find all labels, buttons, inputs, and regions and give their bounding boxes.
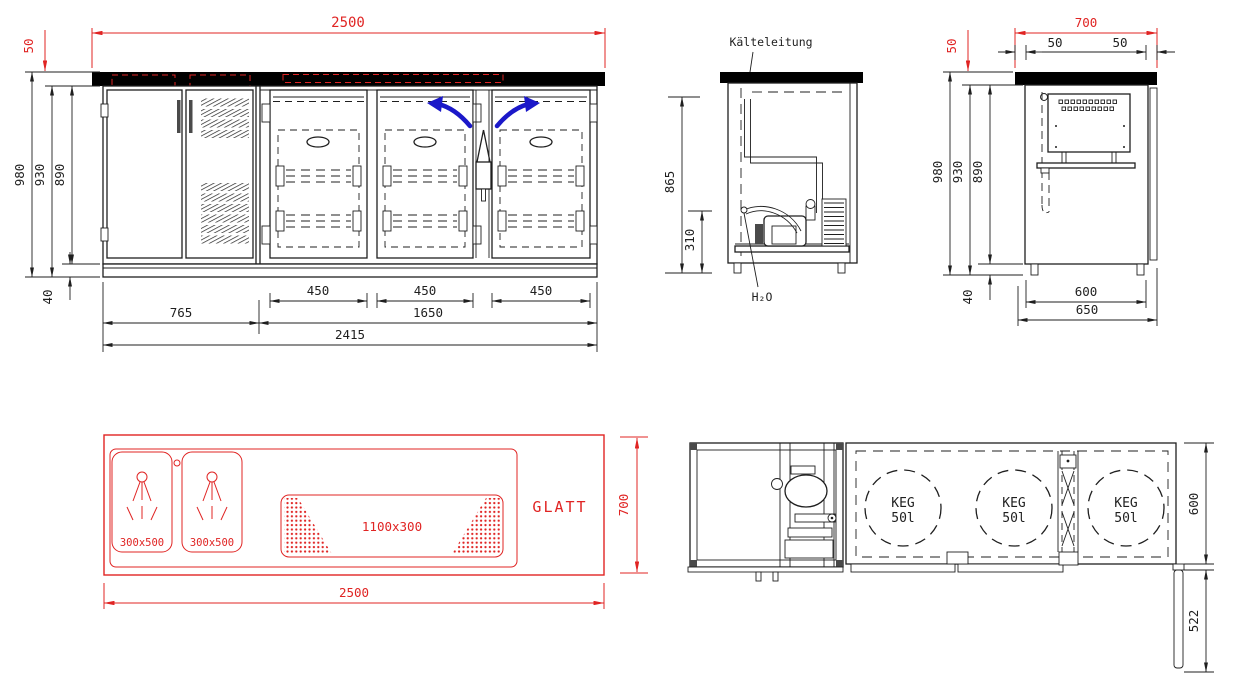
dim-label-side-50a: 50: [1047, 35, 1062, 50]
dim-label-front-50: 50: [21, 38, 36, 53]
front-dim-2500: 2500: [92, 15, 605, 68]
keg2-label: KEG: [1002, 496, 1026, 511]
dim-label-865: 865: [662, 171, 677, 194]
dim-label-1650: 1650: [413, 305, 443, 320]
side-dim-50-red: 50: [944, 30, 968, 71]
hinge-icon: [262, 104, 270, 122]
front-width-dims: 450 450 450 765 1650 2415: [103, 282, 597, 352]
dim-label-counter-700: 700: [616, 494, 631, 517]
side-width-dims: 600 650: [1018, 268, 1157, 326]
leg: [773, 572, 778, 581]
hinge-icon: [590, 104, 597, 122]
side-section-view: Kälteleitung: [662, 35, 863, 304]
dim-label-plan-600: 600: [1186, 493, 1201, 516]
counter-dim-2500: 2500: [104, 583, 604, 609]
hinge-icon: [473, 226, 481, 244]
hinge-icon: [101, 104, 108, 117]
hinge-icon: [473, 104, 481, 122]
dim-label-2415: 2415: [335, 327, 365, 342]
drainer-ribs-left: [284, 498, 332, 554]
section-dims: 865 310: [662, 97, 712, 273]
faucet-icon: [197, 472, 227, 520]
keg2-volume: 50l: [1002, 511, 1025, 526]
dim-label-side-50b: 50: [1112, 35, 1127, 50]
hinge-icon: [101, 228, 108, 241]
sink1-size-label: 300x500: [120, 537, 164, 549]
drainer-size-label: 1100x300: [362, 519, 422, 534]
keg3-volume: 50l: [1114, 511, 1137, 526]
front-elevation-view: 2500 50: [12, 15, 605, 352]
counter-outline: [104, 435, 604, 575]
dim-label-door1-450: 450: [307, 283, 330, 298]
left-door-handle: [177, 100, 181, 133]
side-countertop: [1015, 72, 1157, 85]
surface-finish-label: GLATT: [532, 498, 587, 516]
dim-label-counter-2500: 2500: [339, 585, 369, 600]
refrigerant-line-label: Kälteleitung: [729, 35, 812, 49]
leg: [756, 572, 761, 581]
shelf: [1037, 163, 1135, 168]
dim-label-door3-450: 450: [530, 283, 553, 298]
section-countertop: [720, 72, 863, 83]
counter-dim-700: 700: [616, 437, 648, 573]
countertop-plan-view: 300x500 300x500 1100x300 GLATT 700 2500: [104, 435, 648, 609]
front-dim-50: 50: [21, 30, 45, 71]
technical-drawing: 2500 50: [0, 0, 1241, 697]
dim-label-side-50-red: 50: [944, 38, 959, 53]
front-cabinet-base: [103, 264, 597, 277]
water-drain-label: H₂O: [752, 290, 773, 304]
dim-label-side-930: 930: [950, 161, 965, 184]
side-dim-700: 700: [1015, 15, 1157, 68]
sink2-size-label: 300x500: [190, 537, 234, 549]
dim-label-front-40: 40: [40, 289, 55, 304]
dim-label-front-980: 980: [12, 164, 27, 187]
faucet-icon: [127, 472, 157, 520]
drainer-ribs-right: [452, 498, 500, 554]
leg: [1031, 264, 1038, 275]
dim-label-plan-522: 522: [1186, 610, 1201, 633]
right-door-handle: [189, 100, 193, 133]
dim-label-door2-450: 450: [414, 283, 437, 298]
side-height-dims: 980 930 890 40: [930, 72, 1023, 305]
cabinet-plan-view: KEG 50l KEG 50l KEG 50l: [688, 443, 1214, 672]
tap-hole: [174, 460, 180, 466]
leg: [838, 263, 845, 273]
dim-label-side-980: 980: [930, 161, 945, 184]
drawing-canvas: 2500 50: [0, 0, 1241, 697]
machinery-compartment-plan: [688, 443, 843, 581]
side-door-panel: [1150, 88, 1157, 260]
keg1-volume: 50l: [891, 511, 914, 526]
hinge-icon: [262, 226, 270, 244]
dim-label-front-2500: 2500: [331, 15, 365, 31]
keg3-label: KEG: [1114, 496, 1138, 511]
open-door-plan: [1173, 564, 1184, 668]
side-overhang-dims: 50 50: [998, 35, 1175, 60]
leg: [734, 263, 741, 273]
side-view: 700 50 50 50: [930, 15, 1175, 326]
plan-dims: 600 522: [1184, 443, 1214, 672]
keg1-label: KEG: [891, 496, 915, 511]
dim-label-side-890: 890: [970, 161, 985, 184]
dim-label-765: 765: [170, 305, 193, 320]
dim-label-front-930: 930: [32, 164, 47, 187]
dim-label-side-650: 650: [1076, 302, 1099, 317]
leg: [1137, 264, 1144, 275]
dim-label-side-600: 600: [1075, 284, 1098, 299]
hinge-icon: [590, 226, 597, 244]
compressor-plan: [785, 475, 827, 507]
dim-label-310: 310: [682, 229, 697, 252]
dim-label-side-700: 700: [1075, 15, 1098, 30]
dim-label-front-890: 890: [52, 164, 67, 187]
dim-label-side-40: 40: [960, 289, 975, 304]
front-height-dims: 980 930 890 40: [12, 72, 100, 305]
